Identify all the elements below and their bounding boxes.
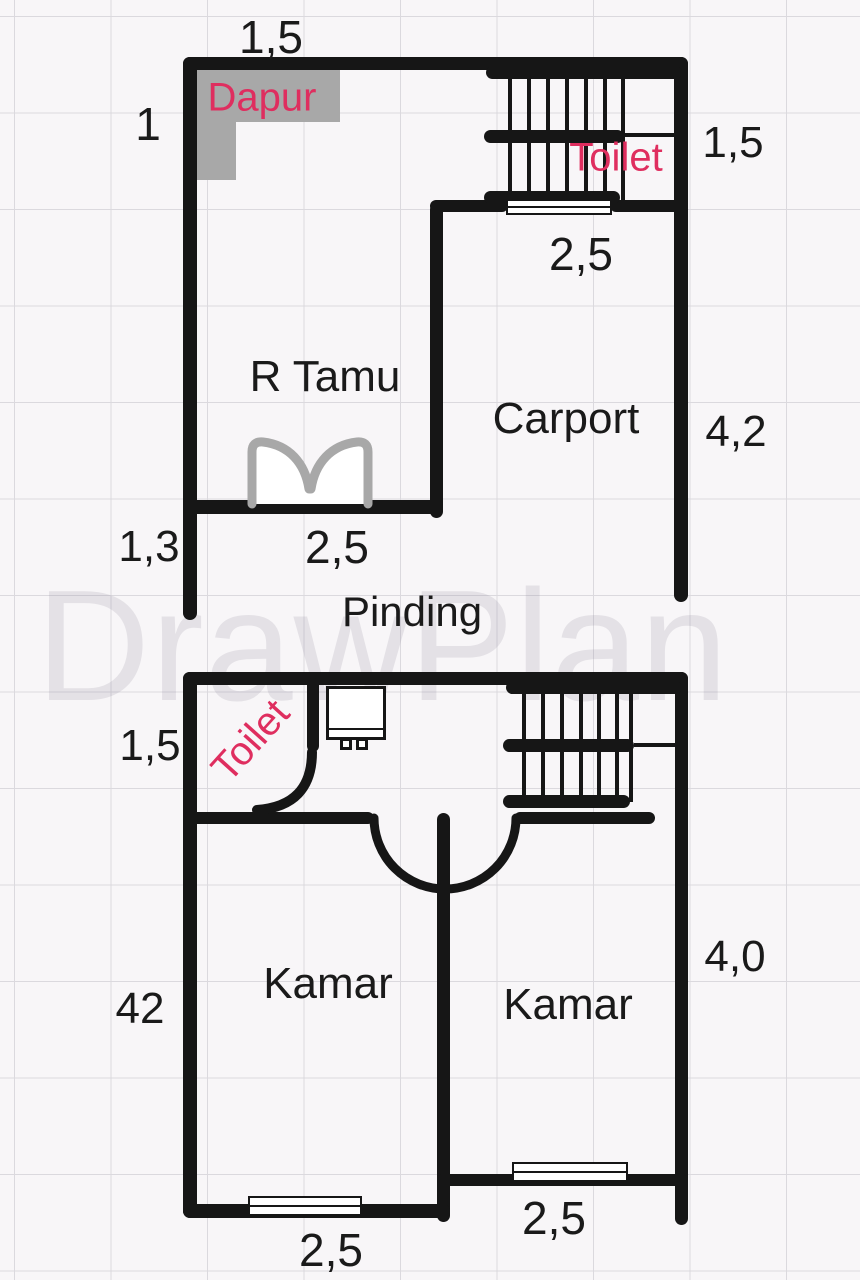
room-label-pinding[interactable]: Pinding xyxy=(342,588,482,636)
stair-tread xyxy=(541,687,545,802)
rtamu-bottom-wall[interactable] xyxy=(183,500,443,514)
stair-bar xyxy=(506,681,682,694)
stair-tread xyxy=(560,687,564,802)
dim-lower-right-height[interactable]: 4,0 xyxy=(704,932,765,982)
floorplan-canvas[interactable]: DrawPlan xyxy=(0,0,860,1280)
window-icon[interactable] xyxy=(506,199,612,215)
washbasin-icon[interactable] xyxy=(326,686,386,740)
hall-wall[interactable] xyxy=(514,812,655,824)
room-label-r-tamu[interactable]: R Tamu xyxy=(250,352,401,402)
dim-lower-toilet-height[interactable]: 1,5 xyxy=(119,721,180,771)
dim-upper-left-height[interactable]: 1 xyxy=(135,97,161,151)
door-swing-icon[interactable] xyxy=(257,752,312,810)
stair-partition-line xyxy=(634,743,676,747)
room-label-dapur[interactable]: Dapur xyxy=(208,76,317,121)
dim-upper-toilet-height[interactable]: 1,5 xyxy=(702,118,763,168)
carport-top-wall[interactable] xyxy=(610,200,688,212)
hall-wall[interactable] xyxy=(183,812,374,824)
window-icon[interactable] xyxy=(512,1162,628,1182)
dim-upper-left-lower[interactable]: 1,3 xyxy=(118,522,179,572)
kamar-partition-wall[interactable] xyxy=(437,813,450,1222)
stair-tread xyxy=(522,687,526,802)
stair-tread xyxy=(527,74,531,197)
stair-tread xyxy=(597,687,601,802)
stair-tread xyxy=(629,687,633,802)
stair-tread xyxy=(508,74,512,197)
dim-carport-height[interactable]: 4,2 xyxy=(705,407,766,457)
toilet-partition-wall[interactable] xyxy=(307,678,319,752)
upper-right-wall[interactable] xyxy=(674,57,688,602)
stair-tread xyxy=(546,74,550,197)
washbasin-foot xyxy=(356,738,368,750)
washbasin-foot xyxy=(340,738,352,750)
lower-right-wall[interactable] xyxy=(675,672,688,1225)
dim-lower-left-height[interactable]: 42 xyxy=(116,984,165,1034)
rtamu-carport-partition-wall[interactable] xyxy=(430,203,443,518)
window-icon[interactable] xyxy=(248,1196,362,1216)
upper-left-wall[interactable] xyxy=(183,57,197,620)
double-door-icon[interactable] xyxy=(252,442,368,504)
dim-upper-stairs-width[interactable]: 2,5 xyxy=(549,227,613,281)
stair-tread xyxy=(615,687,619,802)
dim-upper-top-width[interactable]: 1,5 xyxy=(239,10,303,64)
dim-r-tamu-width[interactable]: 2,5 xyxy=(305,520,369,574)
room-label-kamar-left[interactable]: Kamar xyxy=(263,959,393,1009)
dim-kamar-left-width[interactable]: 2,5 xyxy=(299,1223,363,1277)
stair-tread xyxy=(579,687,583,802)
dim-kamar-right-width[interactable]: 2,5 xyxy=(522,1191,586,1245)
room-label-kamar-right[interactable]: Kamar xyxy=(503,980,633,1030)
room-label-carport[interactable]: Carport xyxy=(493,394,640,444)
lower-left-wall[interactable] xyxy=(183,672,197,1218)
room-label-toilet-upper[interactable]: Toilet xyxy=(569,136,662,181)
